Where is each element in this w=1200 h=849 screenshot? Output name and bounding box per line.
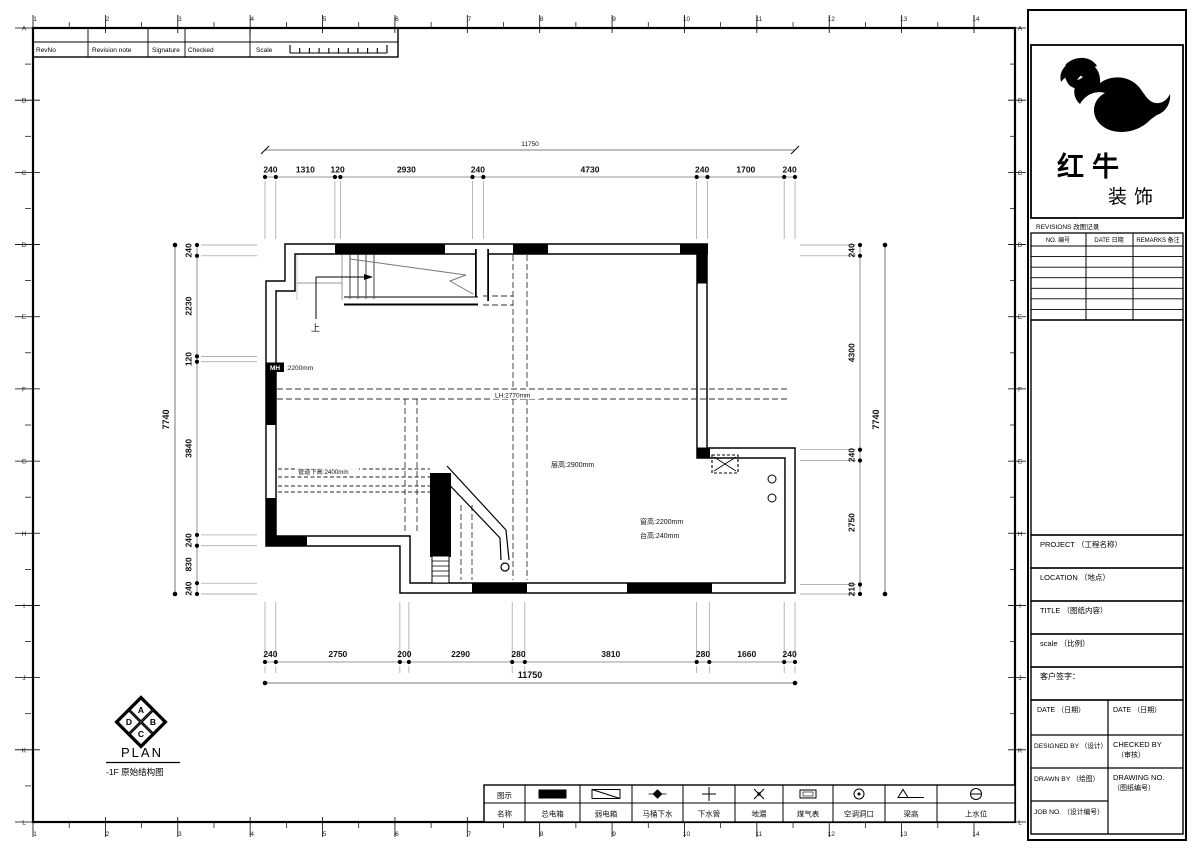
dim-dot [695, 175, 699, 179]
legend-name: 马桶下水 [643, 809, 673, 819]
legend-name: 弱电箱 [595, 809, 618, 819]
grid-row-label: L [1018, 819, 1022, 826]
plan-subtitle: -1F 原始结构图 [106, 767, 164, 777]
grid-col-label: 10 [683, 831, 691, 838]
dim-total-label: 11750 [518, 670, 543, 680]
drawing-no-label2: （图纸编号） [1113, 783, 1155, 792]
rev-col-no: NO. 编号 [1046, 236, 1070, 244]
grid-row-label: K [22, 747, 27, 754]
dim-dot [195, 254, 199, 258]
dim-dot [858, 254, 862, 258]
dim-dot [793, 175, 797, 179]
dim-dot [695, 660, 699, 664]
dim-dot [407, 660, 411, 664]
designed-by-label: DESIGNED BY （设计） [1034, 741, 1107, 750]
grid-row-label: H [22, 531, 27, 538]
door-height-label: :2200mm [286, 365, 313, 372]
dim-label: 280 [696, 649, 710, 659]
dim-label: 210 [847, 582, 857, 596]
plan-title: PLAN [121, 745, 163, 760]
dim-label: 240 [184, 581, 194, 595]
dim-dot [793, 681, 798, 686]
dim-label: 280 [511, 649, 525, 659]
legend-name: 地漏 [752, 809, 767, 819]
dim-label: 200 [397, 649, 411, 659]
dim-label: 4730 [581, 165, 600, 175]
walls [271, 247, 790, 588]
grid-col-label: 6 [395, 16, 399, 23]
compass-letter-b: B [150, 717, 156, 727]
dim-label: 240 [782, 165, 796, 175]
location-label: LOCATION （地点） [1040, 572, 1110, 582]
grid-col-label: 14 [972, 831, 980, 838]
drawing-no-label: DRAWING NO. [1113, 773, 1164, 782]
dim-dot [858, 582, 862, 586]
grid-col-label: 10 [683, 16, 691, 23]
grid-row-label: L [22, 819, 26, 826]
dim-dot [707, 660, 711, 664]
dim-label: 240 [184, 533, 194, 547]
grid-row-label: H [1018, 531, 1023, 538]
dim-label: 3810 [601, 649, 620, 659]
dim-dot [705, 175, 709, 179]
beam-height-label: LH:2770mm [495, 393, 530, 400]
dim-total-label: 11750 [521, 141, 539, 148]
window-symbol [432, 556, 449, 583]
dim-label: 120 [184, 352, 194, 366]
grid-row-label: D [1018, 242, 1023, 249]
grid-col-label: 3 [178, 831, 182, 838]
grid-row-label: B [22, 98, 26, 105]
grid-col-label: 8 [540, 831, 544, 838]
dim-label: 2230 [184, 296, 194, 315]
compass-letter-d: D [126, 717, 132, 727]
dim-label: 240 [695, 165, 709, 175]
dim-label: 240 [847, 448, 857, 462]
dim-label: 1660 [737, 649, 756, 659]
dim-dot [195, 581, 199, 585]
grid-row-label: G [21, 459, 26, 466]
dim-label: 3840 [184, 439, 194, 458]
grid-row-label: F [1018, 386, 1022, 393]
grid-col-label: 9 [612, 831, 616, 838]
dimension-bottom: 240275020022902803810280166024011750 [263, 602, 798, 685]
grid-col-label: 3 [178, 16, 182, 23]
sill-height-label: 台高:240mm [640, 531, 679, 540]
weak-electric-box-icon [592, 790, 620, 799]
dim-dot [858, 592, 862, 596]
dim-dot [195, 533, 199, 537]
dim-dot [274, 660, 278, 664]
ceiling-height-label: 层高:2900mm [551, 460, 594, 469]
grid-col-label: 9 [612, 16, 616, 23]
dim-label: 4300 [847, 343, 857, 362]
dim-label: 240 [782, 649, 796, 659]
scale-bar [290, 45, 387, 53]
dim-dot [263, 175, 267, 179]
dim-label: 2750 [328, 649, 347, 659]
main-electric-box-icon [539, 790, 567, 799]
dim-dot [883, 592, 888, 597]
stair-up-label: 上 [311, 323, 320, 333]
legend-name: 上水位 [965, 809, 988, 819]
dim-dot [858, 448, 862, 452]
dim-dot [858, 243, 862, 247]
brand-name: 红牛 [1057, 151, 1127, 182]
title-block-text: 红牛 装饰 REVISIONS 改图记录 NO. 编号 DATE 日期 REMA… [1034, 151, 1180, 816]
dim-dot [195, 544, 199, 548]
dimension-top: 240131012029302404730240170024011750 [261, 141, 799, 239]
job-no-label: JOB NO. （设计编号） [1034, 807, 1104, 816]
grid-row-label: C [1018, 170, 1023, 177]
dim-total-label: 7740 [871, 409, 881, 429]
plan-caption: PLAN -1F 原始结构图 [106, 745, 180, 777]
pipe-end-icon [501, 563, 509, 571]
revno-label: RevNo [36, 47, 56, 54]
grid-row-label: K [1018, 747, 1023, 754]
signature-label: Signature [152, 47, 180, 54]
drawing-element [757, 792, 760, 795]
grid-row-label: F [22, 386, 26, 393]
dim-dot [333, 175, 337, 179]
legend-header-symbol: 图示 [497, 791, 512, 800]
grid-col-label: 7 [467, 831, 471, 838]
grid-col-label: 13 [900, 831, 908, 838]
dim-dot [481, 175, 485, 179]
dim-dot [793, 660, 797, 664]
compass-letter-c: C [138, 729, 144, 739]
dim-dot [523, 660, 527, 664]
dim-label: 2750 [847, 513, 857, 532]
client-signature-label: 客户签字： [1040, 671, 1080, 681]
date-left-label: DATE （日期） [1037, 706, 1085, 714]
legend-header-name: 名称 [497, 809, 512, 819]
legend-name: 煤气表 [797, 809, 820, 819]
grid-col-label: 11 [755, 16, 762, 23]
dim-label: 120 [331, 165, 345, 175]
pipe-height-label: 管道下高:2400mm [298, 468, 349, 476]
door-height-tag: MH [270, 365, 280, 372]
grid-col-label: 8 [540, 16, 544, 23]
dim-dot [195, 243, 199, 247]
grid-row-label: I [1019, 603, 1021, 610]
dimension-left: 240223012038402408302407740 [161, 243, 257, 597]
revisions-title: REVISIONS 改图记录 [1036, 222, 1100, 231]
dim-label: 2290 [451, 649, 470, 659]
grid-row-label: B [1018, 98, 1022, 105]
grid-row-label: G [1017, 459, 1022, 466]
rev-col-date: DATE 日期 [1094, 236, 1123, 244]
legend-name: 梁高 [904, 809, 919, 819]
dim-dot [782, 660, 786, 664]
grid-col-label: 12 [828, 831, 836, 838]
grid-col-label: 14 [972, 16, 980, 23]
dim-label: 2930 [397, 165, 416, 175]
dim-label: 1310 [296, 165, 315, 175]
drawing-element [539, 790, 567, 799]
grid-row-label: J [1018, 675, 1021, 682]
grid-row-label: E [1018, 314, 1023, 321]
dim-label: 240 [847, 243, 857, 257]
dim-label: 830 [184, 557, 194, 571]
grid-col-label: 5 [323, 831, 327, 838]
grid-col-label: 4 [250, 831, 254, 838]
dimension-right: 240430024027502107740 [800, 243, 887, 597]
project-label: PROJECT （工程名称） [1040, 539, 1122, 549]
grid-col-label: 12 [828, 16, 836, 23]
drawing-sheet: RevNo Revision note Signature Checked Sc… [0, 0, 1200, 849]
dim-dot [195, 354, 199, 358]
dim-dot [195, 360, 199, 364]
dim-dot [398, 660, 402, 664]
legend-name: 空调洞口 [844, 809, 874, 819]
dim-dot [338, 175, 342, 179]
grid-row-label: C [22, 170, 27, 177]
floor-plan: 上 [266, 244, 791, 594]
scale-ratio-label: scale （比例） [1040, 638, 1090, 648]
legend-name: 下水管 [698, 809, 721, 819]
dim-dot [263, 660, 267, 664]
dim-label: 240 [184, 243, 194, 257]
dim-dot [883, 243, 888, 248]
dim-dot [470, 175, 474, 179]
dim-dot [195, 592, 199, 596]
scale-label: Scale [256, 47, 273, 54]
grid-row-label: I [23, 603, 25, 610]
dim-dot [263, 681, 268, 686]
dim-label: 240 [263, 165, 277, 175]
grid-col-label: 11 [755, 831, 762, 838]
title-label: TITLE （图纸内容） [1040, 605, 1108, 615]
grid-col-label: 4 [250, 16, 254, 23]
dim-dot [858, 458, 862, 462]
checked-by-label2: （审核） [1117, 750, 1145, 759]
dim-dot [173, 243, 178, 248]
dim-label: 240 [471, 165, 485, 175]
grid-row-label: A [22, 26, 27, 33]
grid-row-label: E [22, 314, 27, 321]
grid-col-label: 1 [33, 16, 37, 23]
revision-strip [33, 28, 398, 57]
grid-row-label: D [22, 242, 27, 249]
grid-col-label: 1 [33, 831, 37, 838]
grid-col-label: 2 [106, 16, 110, 23]
checked-label: Checked [188, 47, 214, 54]
grid-col-label: 2 [106, 831, 110, 838]
revision-strip-labels: RevNo Revision note Signature Checked Sc… [36, 47, 273, 54]
window-height-label: 窗高:2200mm [640, 517, 683, 526]
brand-logo [1060, 58, 1170, 132]
legend-table: 图示名称总电箱弱电箱马桶下水下水管地漏煤气表空调洞口梁高上水位 [484, 785, 1015, 822]
title-block [1028, 10, 1186, 840]
dim-dot [274, 175, 278, 179]
compass-letter-a: A [138, 705, 144, 715]
grid-col-label: 5 [323, 16, 327, 23]
grid-col-label: 13 [900, 16, 908, 23]
dim-label: 1700 [736, 165, 755, 175]
legend-name: 总电箱 [541, 809, 564, 819]
dim-total-label: 7740 [161, 409, 171, 429]
grid-row-label: A [1018, 26, 1023, 33]
rev-col-remarks: REMARKS 备注 [1136, 236, 1179, 244]
date-right-label: DATE （日期） [1113, 706, 1161, 714]
revision-table-rows [1031, 233, 1183, 320]
drawn-by-label: DRAWN BY （绘图） [1034, 774, 1099, 783]
grid-col-label: 6 [395, 831, 399, 838]
orientation-symbol: A B C D [116, 697, 166, 747]
revision-note-label: Revision note [92, 47, 132, 54]
grid-col-label: 7 [467, 16, 471, 23]
brand-suffix: 装饰 [1108, 186, 1160, 208]
dim-dot [173, 592, 178, 597]
dim-label: 240 [263, 649, 277, 659]
grid-row-label: J [22, 675, 25, 682]
drawing-element [858, 793, 861, 796]
dim-dot [782, 175, 786, 179]
cad-canvas: RevNo Revision note Signature Checked Sc… [0, 0, 1200, 849]
dim-dot [510, 660, 514, 664]
checked-by-label: CHECKED BY [1113, 740, 1162, 749]
